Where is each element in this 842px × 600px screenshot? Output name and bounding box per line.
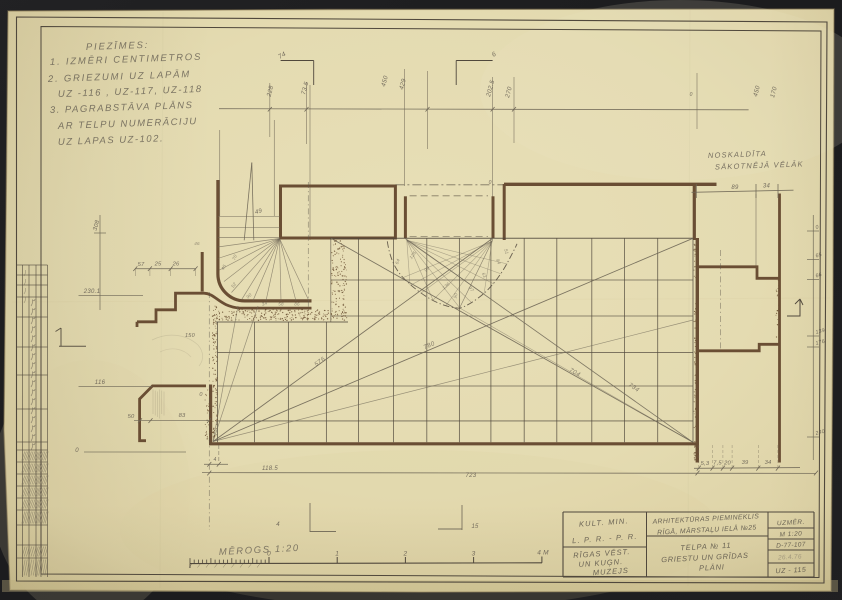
svg-text:57: 57 xyxy=(138,262,145,268)
svg-text:1: 1 xyxy=(335,551,339,558)
svg-text:116: 116 xyxy=(95,380,106,386)
svg-text:46: 46 xyxy=(194,241,200,246)
svg-text:PIEZĪMES:: PIEZĪMES: xyxy=(86,40,150,53)
svg-text:3: 3 xyxy=(472,551,476,558)
svg-text:4: 4 xyxy=(214,457,217,463)
svg-text:25: 25 xyxy=(154,262,162,268)
svg-text:723: 723 xyxy=(466,473,477,479)
svg-text:83: 83 xyxy=(179,413,186,419)
svg-text:4: 4 xyxy=(276,522,280,528)
svg-text:PLĀNI: PLĀNI xyxy=(699,562,725,572)
svg-text:M 1:20: M 1:20 xyxy=(779,530,802,538)
svg-text:150: 150 xyxy=(185,333,196,339)
svg-text:2: 2 xyxy=(402,551,407,558)
svg-text:4 M: 4 M xyxy=(537,550,549,557)
svg-text:0: 0 xyxy=(690,92,693,98)
svg-text:90: 90 xyxy=(453,292,459,299)
svg-text:50: 50 xyxy=(128,414,135,420)
svg-text:0: 0 xyxy=(267,551,271,558)
svg-text:39: 39 xyxy=(742,460,749,466)
svg-text:5,3: 5,3 xyxy=(701,461,710,467)
svg-text:86: 86 xyxy=(294,302,300,307)
svg-text:118.5: 118.5 xyxy=(262,466,278,472)
svg-text:26: 26 xyxy=(172,262,180,268)
svg-text:26.4.76: 26.4.76 xyxy=(777,553,802,561)
svg-text:58: 58 xyxy=(278,302,284,307)
svg-text:34: 34 xyxy=(763,184,771,190)
svg-text:20: 20 xyxy=(723,461,731,467)
svg-text:34: 34 xyxy=(765,460,772,466)
svg-text:89: 89 xyxy=(731,185,739,191)
svg-text:15: 15 xyxy=(471,524,479,530)
svg-text:0: 0 xyxy=(75,448,79,454)
svg-text:UZMĒR.: UZMĒR. xyxy=(777,518,805,527)
svg-text:230.1: 230.1 xyxy=(83,289,101,295)
svg-text:7,5: 7,5 xyxy=(713,461,722,467)
